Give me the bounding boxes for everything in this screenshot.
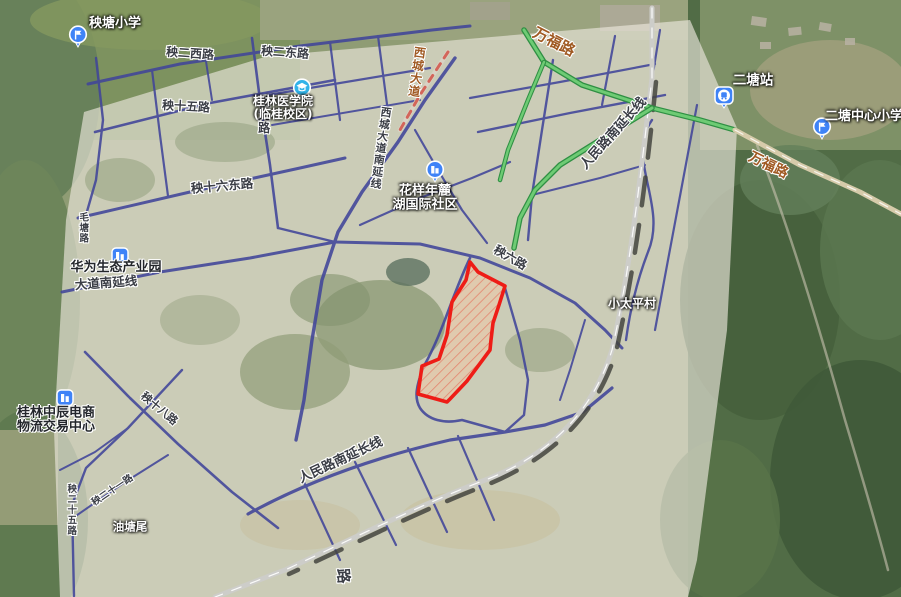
poi-label-line: 湖国际社区 — [392, 199, 457, 213]
poi-label-ertang-primary[interactable]: 二塘中心小学 — [825, 110, 901, 124]
poi-label-yangtang-primary[interactable]: 秧塘小学 — [89, 17, 141, 31]
poi-label-guilin-medical[interactable]: 桂林医学院 (临桂校区) — [253, 95, 313, 121]
poi-label-ertang-station[interactable]: 二塘站 — [733, 74, 774, 89]
road-label-partial: 路 — [334, 568, 352, 584]
road-label-yang15: 秧十五路 — [162, 99, 211, 115]
satellite-map[interactable]: 秧二西路 秧二东路 秧十五路 秧九路 秧十六东路 秧六路 人民路南延长线 人民路… — [0, 0, 901, 597]
village-label-xiaotaiping: 小太平村 — [608, 297, 656, 310]
poi-label-zhongchen[interactable]: 桂林中辰电商 物流交易中心 — [17, 407, 95, 436]
poi-label-line: (临桂校区) — [253, 108, 313, 121]
poi-label-huawei-park[interactable]: 华为生态产业园 — [70, 261, 161, 275]
map-canvas — [0, 0, 901, 597]
poi-label-huayangnian[interactable]: 花样年麓 湖国际社区 — [392, 185, 457, 214]
village-label-youtangwei: 油塘尾 — [113, 521, 148, 534]
poi-label-line: 物流交易中心 — [17, 421, 95, 435]
road-label-maotang: 毛塘路 — [77, 212, 87, 244]
road-label-yang25: 秧二十五路 — [65, 484, 75, 537]
